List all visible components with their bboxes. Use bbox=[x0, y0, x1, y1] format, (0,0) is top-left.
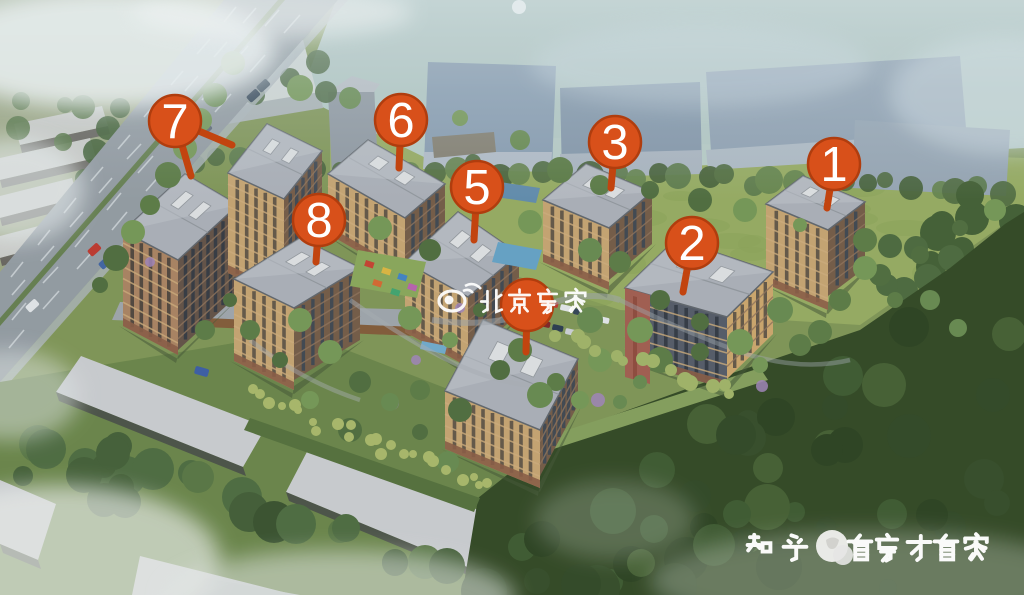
svg-text:7: 7 bbox=[161, 95, 188, 149]
svg-text:2: 2 bbox=[678, 217, 705, 271]
svg-text:3: 3 bbox=[601, 116, 628, 170]
svg-text:5: 5 bbox=[463, 161, 490, 215]
svg-text:8: 8 bbox=[305, 194, 332, 248]
svg-text:6: 6 bbox=[387, 94, 414, 148]
svg-text:1: 1 bbox=[820, 138, 847, 192]
